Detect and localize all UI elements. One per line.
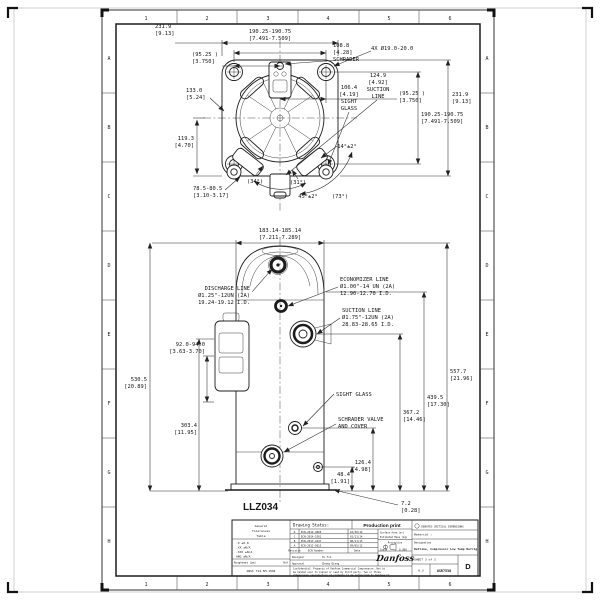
dim-367-mm: 367.2	[403, 410, 419, 416]
dim-schrader-in: [4.28]	[333, 50, 352, 56]
tol-header-1: General	[255, 524, 268, 528]
roughness-value: N/A	[283, 561, 288, 565]
dim-overall-height-mm: 231.9	[452, 92, 468, 98]
dim-shell-dia-in: [7.211-7.289]	[259, 235, 301, 241]
rev-date: 10/30/14	[350, 530, 363, 534]
zone-number: 2	[205, 16, 208, 22]
bottom-left-fitting	[227, 147, 265, 179]
terminal-box	[215, 313, 249, 391]
discharge-line-label-2: Ø1.25"-12UN (2A)	[198, 292, 250, 299]
dim-367-in: [14.46]	[403, 417, 426, 423]
dim-530-in: [20.89]	[124, 384, 147, 390]
schrader-valve-label-1: SCHRADER VALVE	[338, 417, 383, 423]
tol-row: ANG ±N/A	[236, 555, 251, 559]
dim-sight-mm: 106.4	[341, 85, 357, 91]
dim-sight-in: [4.19]	[339, 92, 358, 98]
rev-ecn: ECN-2013-4247	[301, 539, 322, 543]
economizer-fitting	[276, 301, 287, 312]
approval-label: Approval	[292, 561, 305, 565]
dim-schrader-mm: 108.8	[333, 43, 349, 49]
critical-dimensions-note: DENOTES CRITICAL DIMENSIONS	[422, 524, 465, 528]
zone-number: 6	[448, 582, 451, 588]
economizer-line-label-3: 12.90-12.70 I.D.	[340, 291, 392, 297]
dim-439-mm: 439.5	[427, 395, 443, 401]
critical-dimension-icon	[415, 524, 419, 528]
zone-number: 4	[326, 582, 329, 588]
base-plate	[225, 484, 337, 490]
danfoss-logo: Danfoss	[375, 554, 415, 564]
sight-label-1: SIGHT	[341, 99, 358, 105]
dim-126-in: [4.98]	[352, 467, 371, 473]
terminal-tab	[269, 62, 291, 98]
zone-letter: A	[485, 56, 488, 62]
zone-number: 1	[144, 16, 147, 22]
zone-letter: F	[107, 401, 110, 407]
dim-shell-dia-mm: 183.14-185.14	[259, 228, 301, 234]
zone-number: 6	[448, 16, 451, 22]
approval-value: Zhang Qiang	[322, 561, 340, 565]
tol-row: .XXX ±N/A	[236, 550, 252, 554]
zone-letter: C	[485, 194, 488, 200]
zone-letter: E	[485, 332, 488, 338]
discharge-line-label-3: 19.24-19.12 I.D.	[198, 300, 250, 306]
suction-line-label-1: SUCTION LINE	[342, 308, 381, 314]
dim-half-span-mm: (95.25 )	[192, 52, 218, 58]
sight-glass	[289, 422, 302, 435]
dim-126-mm: 126.4	[355, 460, 371, 466]
dim-72-mm: 7.2	[401, 501, 411, 507]
drawing-status-label: Drawing Status:	[293, 523, 329, 528]
dim-hole-span-mm: 190.25-190.75	[249, 29, 291, 35]
zone-letter: D	[485, 263, 488, 269]
dim-overall-height-in: [9.13]	[452, 99, 471, 105]
dim-48-mm: 48.4	[337, 472, 350, 478]
title-block-right: DENOTES CRITICAL DIMENSIONS Material : D…	[414, 524, 477, 573]
zone-number: 4	[326, 16, 329, 22]
suction-line-label-2: Ø1.75"-12UN (2A)	[342, 314, 394, 321]
zone-letter: B	[485, 125, 488, 131]
rev-ecn: ECN-2014-4005	[301, 530, 322, 534]
dim-suction-mm: 124.9	[370, 73, 386, 79]
top-view-dimensions: 231.9 [9.13] 190.25-190.75 [7.491-7.509]…	[155, 24, 471, 200]
tol-row: .X ±0.8	[236, 541, 249, 545]
tol-row: .XX ±N/A	[236, 546, 251, 550]
title-block: General Tolerances Table .X ±0.8 .XX ±N/…	[232, 520, 478, 577]
suction-stub-top	[270, 174, 290, 198]
dim-overall-width-mm: 231.9	[155, 24, 171, 30]
zone-letter: F	[485, 401, 488, 407]
dim-303-mm: 303.4	[181, 423, 197, 429]
economizer-line-label-2: Ø1.00"-14 UN (2A)	[340, 283, 395, 290]
rev-letter: A	[294, 543, 296, 547]
designer-label: Designer	[292, 555, 305, 559]
dim-48-in: [1.91]	[331, 479, 350, 485]
dim-half-span2-in: [3.750]	[399, 98, 422, 104]
angle-14: 14°±2°	[337, 144, 356, 150]
standard-note: ANSI Y14.5M-1994	[247, 569, 276, 573]
rev-date: 01/11/14	[350, 534, 363, 538]
economizer-line-label-1: ECONOMIZER LINE	[340, 277, 389, 283]
dim-hole-span2-mm: 190.25-190.75	[421, 112, 463, 118]
designation-value: Outline, Compressor Low Temp Refrig	[414, 547, 477, 551]
zone-number: 1	[144, 582, 147, 588]
drawing-number: OSR7530	[437, 569, 451, 573]
zone-letter: G	[485, 470, 488, 476]
confidential-note-3: dimensional reproduction of contents to …	[293, 574, 391, 577]
revision-letter-box: D	[465, 562, 471, 571]
angle-73: (73°)	[332, 194, 348, 200]
rev-date: 08/11/13	[350, 539, 363, 543]
drawing-status-value: Production print	[363, 523, 401, 529]
dim-439-in: [17.30]	[427, 402, 450, 408]
sight-label-2: GLASS	[341, 106, 357, 112]
schrader-valve	[261, 445, 283, 467]
schrader-label: SCHRADER	[333, 57, 360, 63]
zone-letter: D	[107, 263, 110, 269]
dim-785-in: [3.10-3.17]	[193, 193, 229, 199]
dim-119-mm: 119.3	[178, 136, 194, 142]
dim-133-mm: 133.0	[186, 88, 202, 94]
dim-785-mm: 78.5-80.5	[193, 186, 222, 192]
dim-303-in: [11.95]	[174, 430, 197, 436]
rev-header-ecn: ECN Number	[308, 549, 324, 553]
holes-callout: 4X Ø19.0-20.0	[371, 45, 413, 52]
dim-92-in: [3.63-3.70]	[169, 349, 205, 355]
sheet-number: SHEET 3 of 3	[414, 558, 436, 562]
zone-number: 2	[205, 582, 208, 588]
discharge-fitting	[269, 256, 288, 275]
sight-glass-label: SIGHT GLASS	[336, 392, 372, 398]
dim-557-in: [21.96]	[450, 376, 473, 382]
dim-half-span-in: [3.750]	[192, 59, 215, 65]
schrader-valve-label-2: AND COVER	[338, 424, 368, 430]
zone-number: 5	[387, 16, 390, 22]
zone-number: 3	[266, 16, 269, 22]
zone-letter: H	[107, 539, 110, 545]
sheet-scale-small: 0.3	[418, 569, 424, 573]
angle-34: (34°)	[247, 179, 263, 185]
zone-letter: G	[107, 470, 110, 476]
rev-ecn: ECN-2012-5013	[301, 543, 322, 547]
dim-hole-span-in: [7.491-7.509]	[249, 36, 291, 42]
roughness-label: Roughness (μm)	[234, 561, 256, 565]
scale-label: Scale	[380, 548, 388, 551]
zone-letter: A	[107, 56, 110, 62]
rev-header-date: Date	[354, 549, 361, 553]
model-label: LLZ034	[243, 502, 278, 513]
zone-number: 3	[266, 582, 269, 588]
designation-label: Designation	[414, 541, 432, 545]
drawing-sheet: A B C D E F G H A B C D E F G H 1 2 3 4 …	[0, 0, 600, 600]
rev-header-rev: Revision	[288, 549, 301, 553]
front-view: 183.14-185.14 [7.211-7.289] DISCHARGE LI…	[124, 228, 472, 514]
oil-fitting	[313, 463, 323, 472]
angle-45: 45°±2°	[298, 194, 317, 200]
suction-label-2: LINE	[372, 94, 385, 100]
tol-header-2: Tolerances	[252, 529, 270, 533]
suction-label-1: SUCTION	[367, 87, 390, 93]
rev-date: 09/05/12	[350, 543, 363, 547]
engineering-drawing: A B C D E F G H A B C D E F G H 1 2 3 4 …	[0, 0, 600, 600]
rev-ecn: ECN-2014-5261	[301, 534, 322, 538]
dim-530-mm: 530.5	[131, 377, 147, 383]
zone-letter: B	[107, 125, 110, 131]
rev-letter: B	[294, 539, 296, 543]
dim-suction-in: [4.92]	[368, 80, 387, 86]
surface-area-label: Surface Area (m²)	[380, 532, 404, 535]
suction-line-label-3: 28.83-28.65 I.D.	[342, 322, 394, 328]
scale-value: 0.300	[399, 547, 407, 551]
top-view: 231.9 [9.13] 190.25-190.75 [7.491-7.509]…	[155, 24, 471, 212]
dim-557-mm: 557.7	[450, 369, 466, 375]
estimated-mass-label: Estimated Mass (kg)	[380, 536, 407, 539]
rev-letter: D	[294, 530, 296, 534]
dim-overall-width-in: [9.13]	[155, 31, 174, 37]
designer-value: Yu Yin	[322, 555, 332, 559]
tol-header-3: Table	[256, 534, 265, 538]
tolerance-table: General Tolerances Table .X ±0.8 .XX ±N/…	[234, 524, 288, 573]
front-view-dimensions: 183.14-185.14 [7.211-7.289] DISCHARGE LI…	[124, 228, 472, 514]
zone-letter: C	[107, 194, 110, 200]
zone-letter: H	[485, 539, 488, 545]
zone-letter: E	[107, 332, 110, 338]
dim-72-in: [0.28]	[401, 508, 420, 514]
dim-hole-span2-in: [7.491-7.509]	[421, 119, 463, 125]
dim-133-in: [5.24]	[186, 95, 205, 101]
dim-half-span2-mm: (95.25 )	[399, 91, 425, 97]
rev-letter: C	[294, 534, 296, 538]
projection-block: Surface Area (m²) Estimated Mass (kg) Pr…	[375, 532, 415, 564]
discharge-line-label-1: DISCHARGE LINE	[205, 286, 250, 292]
angle-31: (31°)	[290, 180, 306, 186]
material-label: Material :	[414, 533, 432, 537]
dim-119-in: [4.70]	[175, 143, 194, 149]
dim-92-mm: 92.0-94.0	[176, 342, 205, 348]
zone-number: 5	[387, 582, 390, 588]
